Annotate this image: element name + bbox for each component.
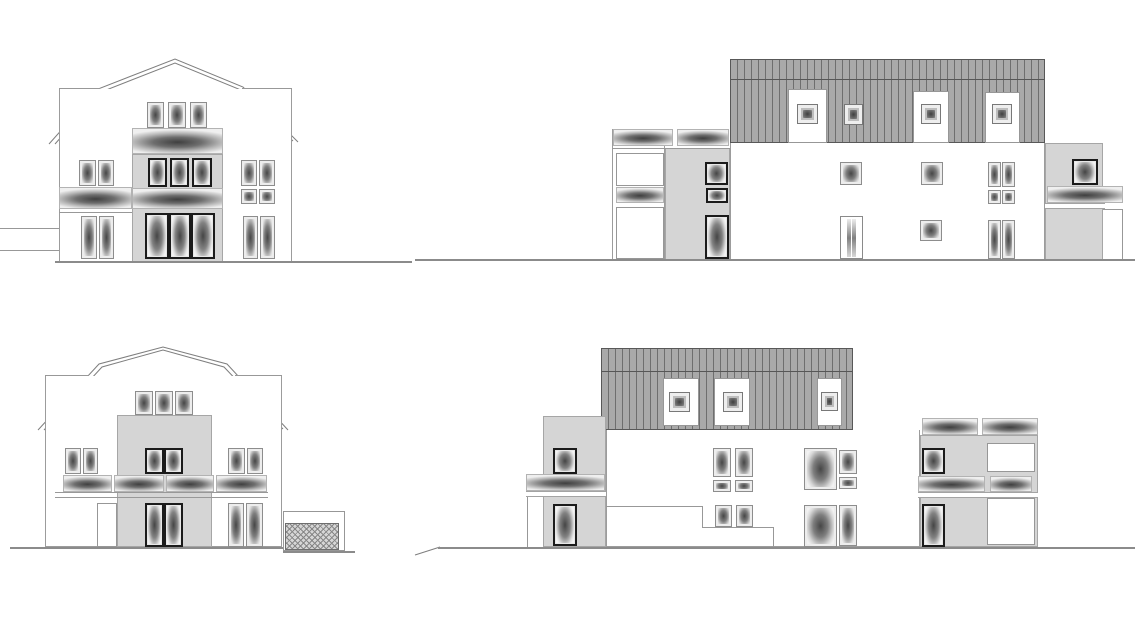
left-lower-window: [81, 216, 97, 259]
attic-window: [147, 102, 164, 128]
facade-window: [839, 450, 857, 474]
balcony-glass-band: [922, 418, 978, 435]
balcony-support-line: [527, 497, 528, 547]
facade-window: [713, 448, 731, 477]
right-upper-window: [259, 160, 275, 186]
terrace-door-panel: [169, 213, 191, 259]
facade-small-window: [713, 480, 731, 492]
eaves-line-left: [59, 88, 100, 89]
bay-lower-window-black-frame: [145, 503, 164, 547]
terrace-edge-line: [1122, 209, 1123, 260]
bay-window-black-frame: [145, 448, 164, 474]
annex-door-black-frame: [922, 504, 945, 547]
terrain-step-line: [606, 506, 702, 507]
attic-window: [175, 391, 193, 415]
ground-line: [415, 259, 1135, 261]
annex-window-black-frame: [922, 448, 945, 474]
neighbor-wall-line: [0, 228, 59, 229]
right-upper-window: [228, 448, 245, 474]
terrain-step-line: [702, 527, 773, 528]
annex-window-black-frame: [705, 162, 728, 185]
ground-line: [55, 261, 412, 263]
facade-window: [839, 505, 857, 546]
balcony-glass-band: [166, 475, 214, 492]
annex-window-black-frame: [1072, 159, 1098, 185]
balcony-glass-band: [1047, 186, 1123, 203]
facade-large-window: [804, 505, 837, 547]
right-lower-window: [243, 216, 258, 259]
facade-small-window: [839, 477, 857, 489]
balcony-glass-band: [677, 129, 729, 146]
facade-window: [1002, 162, 1015, 187]
architectural-elevation-sheet: [0, 0, 1135, 638]
attic-window: [155, 391, 173, 415]
right-lower-window: [260, 216, 275, 259]
attic-window: [190, 102, 207, 128]
dormer-window: [723, 392, 743, 412]
ground-line: [10, 547, 283, 549]
attic-window: [168, 102, 186, 128]
garage-door-hatch: [285, 523, 339, 550]
main-wall: [606, 430, 920, 547]
balcony-slab-line: [55, 497, 268, 498]
bay-window-black-frame: [192, 158, 212, 187]
recess-opening-panel: [987, 443, 1035, 472]
balcony-glass-band: [59, 187, 132, 209]
dormer-window: [669, 392, 690, 412]
annex-window-black-frame: [553, 448, 577, 474]
right-lower-window: [228, 503, 244, 547]
balcony-glass-band: [132, 128, 223, 154]
entrance-door: [840, 216, 863, 259]
facade-window: [735, 448, 753, 477]
facade-small-window: [715, 505, 732, 527]
eaves-line-right: [242, 88, 292, 89]
balcony-glass-band: [616, 187, 664, 203]
dormer-window: [921, 104, 941, 124]
left-upper-window: [83, 448, 98, 474]
terrace-door-panel: [191, 213, 215, 259]
annex-window-black-frame: [706, 188, 728, 203]
roof-window: [844, 104, 863, 125]
dormer-window: [797, 104, 818, 124]
terrain-step-line: [773, 527, 774, 547]
eaves-line-right: [235, 375, 282, 376]
balcony-slab-line: [55, 492, 268, 493]
facade-small-window: [735, 480, 753, 492]
roof-seam-line: [731, 79, 1044, 80]
facade-small-window: [736, 505, 753, 527]
balcony-slab: [1045, 203, 1105, 209]
balcony-slab-line: [612, 148, 730, 149]
right-small-window: [241, 189, 257, 204]
facade-window: [921, 162, 943, 185]
facade-window: [988, 220, 1001, 259]
right-upper-window: [241, 160, 257, 186]
right-upper-window: [247, 448, 263, 474]
bay-window-black-frame: [148, 158, 167, 187]
roof-seam-line: [602, 371, 852, 372]
facade-window: [1002, 220, 1015, 259]
terrace-edge-line: [1103, 209, 1123, 210]
balcony-glass-band: [918, 476, 985, 492]
annex-door-black-frame: [553, 504, 577, 546]
balcony-glass-band: [990, 476, 1032, 492]
balcony-glass-band: [526, 474, 605, 491]
facade-window: [840, 162, 862, 185]
facade-window: [920, 220, 942, 241]
left-upper-window: [98, 160, 114, 186]
left-upper-window: [79, 160, 96, 186]
recess-opening-panel: [987, 498, 1035, 545]
facade-small-window: [988, 190, 1001, 204]
terrain-step-line: [702, 506, 703, 527]
recess-opening-panel: [616, 153, 664, 186]
bay-window-black-frame: [164, 448, 183, 474]
ground-line-garage: [283, 551, 355, 553]
neighbor-wall-line: [0, 250, 59, 251]
left-lower-window: [99, 216, 114, 259]
terrain-slope-line: [415, 547, 440, 555]
balcony-glass-band: [132, 188, 223, 209]
attic-window: [135, 391, 153, 415]
balcony-glass-band: [613, 129, 673, 146]
right-lower-window: [246, 503, 263, 547]
entrance-door: [97, 503, 117, 547]
recess-opening-panel: [616, 207, 664, 259]
balcony-slab: [526, 491, 606, 497]
eaves-line-left: [45, 375, 89, 376]
balcony-glass-band: [63, 475, 112, 492]
balcony-glass-band: [982, 418, 1038, 435]
facade-large-window: [804, 448, 837, 490]
balcony-glass-band: [216, 475, 267, 492]
terrace-door-panel: [145, 213, 169, 259]
dormer-window: [821, 392, 838, 411]
facade-small-window: [1002, 190, 1015, 204]
ground-line: [438, 547, 1135, 549]
bay-window-black-frame: [170, 158, 189, 187]
annex-door-black-frame: [705, 215, 729, 259]
balcony-slab-line: [59, 212, 132, 213]
bay-lower-window-black-frame: [164, 503, 183, 547]
left-upper-window: [65, 448, 81, 474]
balcony-glass-band: [114, 475, 164, 492]
right-small-window: [259, 189, 275, 204]
facade-window: [988, 162, 1001, 187]
dormer-window: [992, 104, 1012, 124]
